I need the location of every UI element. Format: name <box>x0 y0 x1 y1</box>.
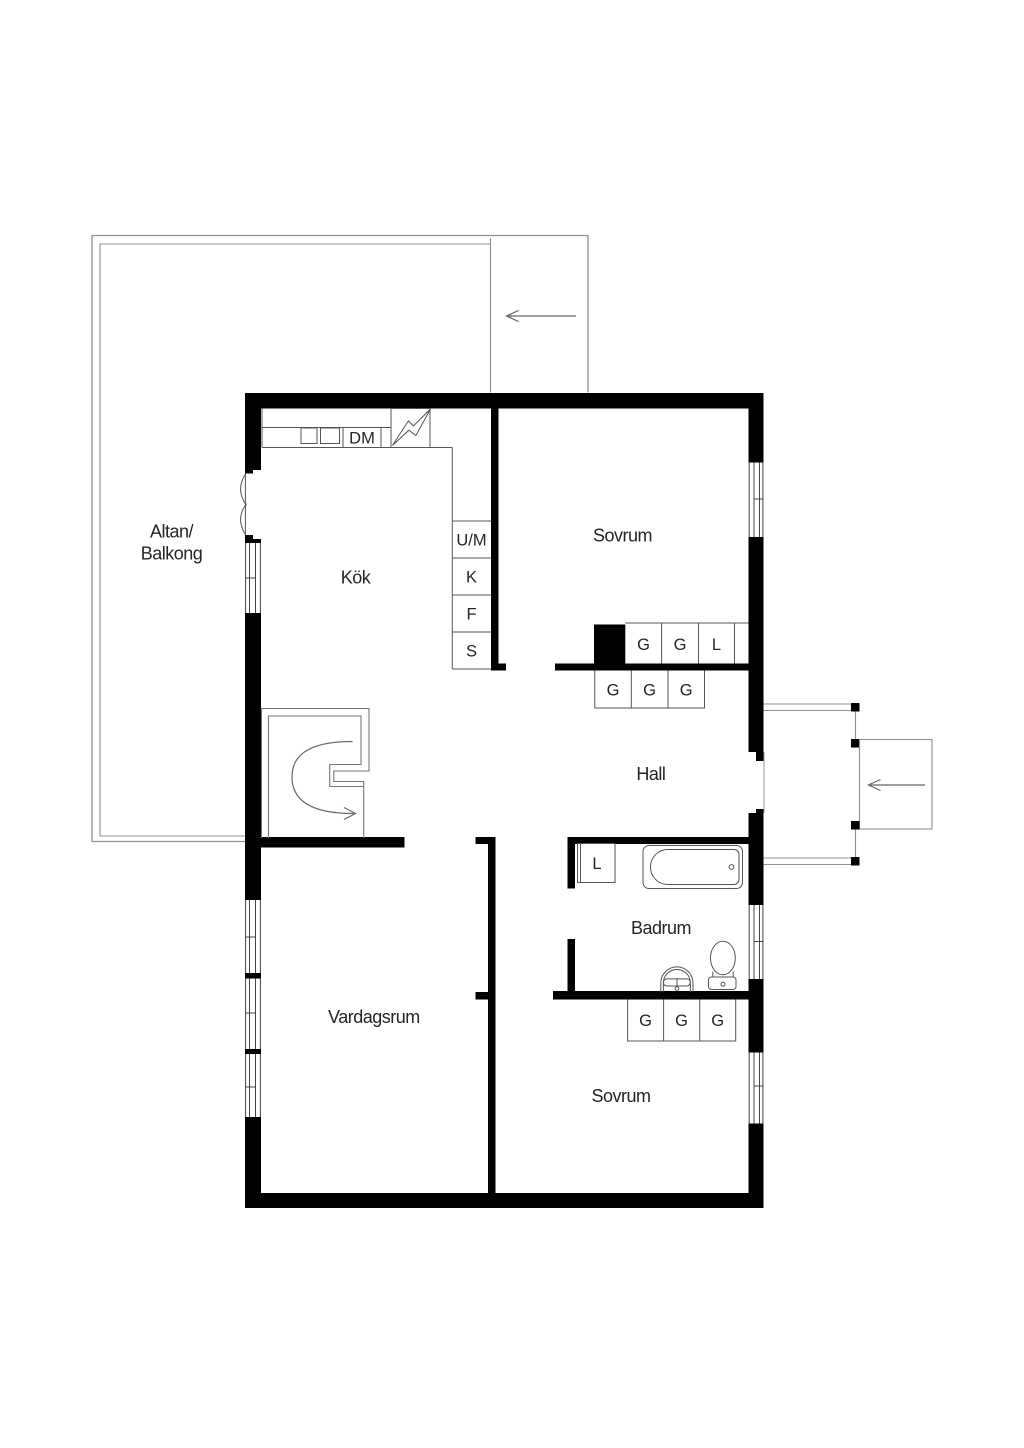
svg-text:Sovrum: Sovrum <box>593 526 652 546</box>
svg-text:Sovrum: Sovrum <box>591 1086 650 1106</box>
svg-text:Badrum: Badrum <box>631 918 691 938</box>
svg-text:DM: DM <box>349 430 375 448</box>
svg-text:G: G <box>637 636 650 654</box>
svg-text:L: L <box>712 636 721 654</box>
svg-text:Kök: Kök <box>341 567 372 587</box>
svg-text:G: G <box>674 636 687 654</box>
svg-text:K: K <box>466 569 477 587</box>
svg-text:G: G <box>675 1012 688 1030</box>
svg-text:G: G <box>639 1012 652 1030</box>
svg-text:L: L <box>592 855 601 873</box>
svg-text:G: G <box>680 682 693 700</box>
svg-text:Altan/: Altan/ <box>150 522 194 542</box>
svg-text:G: G <box>711 1012 724 1030</box>
svg-text:Vardagsrum: Vardagsrum <box>328 1007 420 1027</box>
svg-text:U/M: U/M <box>456 532 486 550</box>
svg-text:G: G <box>607 682 620 700</box>
svg-text:S: S <box>466 643 477 661</box>
svg-text:F: F <box>466 606 476 624</box>
svg-text:Balkong: Balkong <box>141 544 203 564</box>
svg-text:G: G <box>643 682 656 700</box>
svg-text:Hall: Hall <box>636 764 665 784</box>
